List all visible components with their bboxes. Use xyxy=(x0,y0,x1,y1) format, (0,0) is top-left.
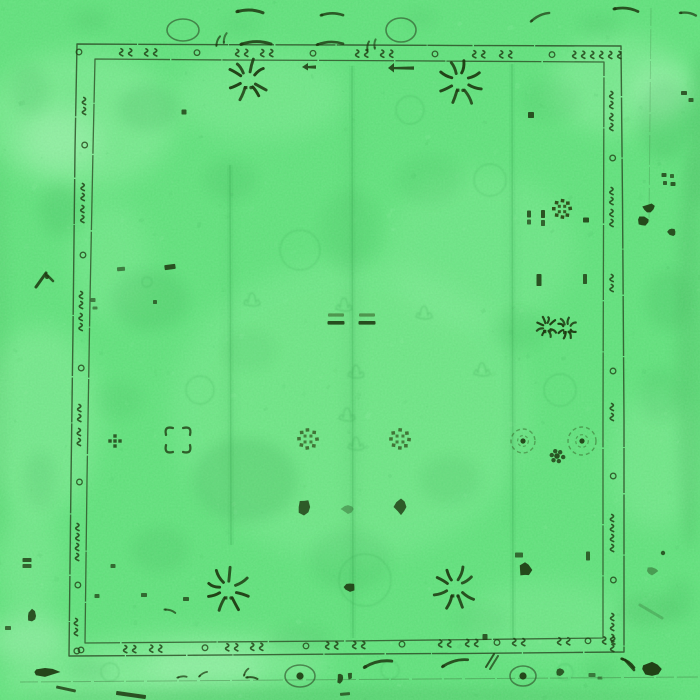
rosette-square xyxy=(309,435,312,438)
speckle xyxy=(231,617,233,619)
dark-mark xyxy=(483,634,488,640)
spray-center xyxy=(244,86,247,89)
spray-center xyxy=(563,331,566,334)
speckle xyxy=(641,598,648,602)
dark-mark xyxy=(93,307,98,310)
speckle xyxy=(615,410,617,413)
speckle xyxy=(494,648,497,652)
speckle xyxy=(109,22,112,26)
dark-mark xyxy=(527,220,531,225)
speckle xyxy=(114,658,117,662)
spray-center-dot xyxy=(249,86,252,89)
rosette-square xyxy=(401,440,404,443)
rosette-center-dot xyxy=(520,438,525,443)
cross-square xyxy=(113,434,116,437)
speckle xyxy=(274,243,278,247)
speckle xyxy=(357,506,362,511)
speckle xyxy=(48,319,51,322)
rosette-square xyxy=(391,431,395,435)
cross-square xyxy=(113,444,116,447)
speckle xyxy=(463,228,466,231)
dark-mark xyxy=(583,218,589,223)
speckle xyxy=(130,342,134,347)
rosette-square xyxy=(555,213,559,217)
ghost-motif xyxy=(580,15,620,35)
dark-mark xyxy=(153,300,157,304)
speckle xyxy=(282,384,287,389)
speckle xyxy=(79,152,82,156)
rosette-square xyxy=(309,440,312,443)
speckle xyxy=(347,441,349,442)
speckle xyxy=(538,640,542,644)
cluster-dot xyxy=(553,449,557,453)
dark-mark xyxy=(91,298,96,302)
speckle xyxy=(1,7,5,11)
ghost-motif xyxy=(666,580,694,620)
rosette-square xyxy=(398,446,402,450)
speckle xyxy=(517,221,520,224)
ghost-motif xyxy=(270,626,330,654)
speckle xyxy=(360,654,363,657)
speckle xyxy=(501,431,503,432)
speckle xyxy=(487,511,488,512)
spray-center xyxy=(456,89,459,92)
speckle xyxy=(636,524,638,526)
dark-mark xyxy=(589,673,596,677)
dark-mark xyxy=(681,91,687,95)
cross-square xyxy=(108,439,111,442)
dark-mark xyxy=(5,626,11,630)
rosette-square xyxy=(305,446,309,450)
rosette-square xyxy=(306,428,310,432)
rosette-square xyxy=(563,205,566,208)
speckle xyxy=(518,357,521,361)
spray-center-dot xyxy=(568,330,571,333)
cluster-dot xyxy=(557,459,561,463)
spray-center-dot xyxy=(461,89,464,92)
ghost-motif xyxy=(454,606,506,634)
speckle xyxy=(63,323,66,325)
dark-mark xyxy=(586,552,590,561)
rosette-square xyxy=(558,205,561,208)
cluster-dot xyxy=(561,455,565,459)
speckle xyxy=(194,461,196,463)
dark-mark xyxy=(117,267,125,272)
rosette-square xyxy=(401,435,404,438)
ghost-motif xyxy=(132,528,188,572)
speckle xyxy=(594,94,598,97)
dark-mark xyxy=(141,593,147,597)
rosette-square xyxy=(404,444,408,447)
speckle xyxy=(99,351,103,355)
rosette-square xyxy=(304,440,307,443)
dark-mark xyxy=(111,564,116,568)
ghost-motif xyxy=(193,438,297,522)
dark-mark xyxy=(671,182,676,186)
rug-photo xyxy=(0,0,700,700)
dark-mark xyxy=(23,558,32,562)
spray-center xyxy=(543,330,546,333)
crease-line xyxy=(230,165,231,545)
dark-mark xyxy=(663,181,667,185)
speckle xyxy=(391,228,396,232)
ghost-motif xyxy=(118,86,178,130)
rosette-center-dot xyxy=(579,438,584,443)
rosette-square xyxy=(396,440,399,443)
rosette-square xyxy=(300,431,304,435)
spray-center-dot xyxy=(548,329,551,332)
rosette-square xyxy=(396,435,399,438)
speckle xyxy=(220,312,222,315)
ghost-motif xyxy=(420,456,480,504)
ellipse-center-dot xyxy=(519,672,526,679)
rosette-square xyxy=(398,428,402,432)
rosette-square xyxy=(297,437,301,441)
speckle xyxy=(593,514,595,517)
cluster-dot xyxy=(551,458,555,462)
dark-dot xyxy=(661,551,665,555)
rosette-square xyxy=(566,201,570,205)
rosette-square xyxy=(312,444,316,448)
speckle xyxy=(123,89,126,92)
ghost-motif xyxy=(72,10,108,30)
speckle xyxy=(153,233,156,236)
ghost-motif xyxy=(98,382,142,418)
rosette-square xyxy=(389,437,393,440)
dash-upper xyxy=(328,313,344,316)
speckle xyxy=(433,81,436,84)
spray-leaf xyxy=(548,317,549,323)
speckle xyxy=(26,268,29,271)
dark-mark xyxy=(23,564,32,568)
speckle xyxy=(575,251,580,256)
rosette-square xyxy=(304,435,307,438)
rug-image-container: Top-down photograph of an emerald green … xyxy=(0,0,700,700)
ghost-motif xyxy=(646,270,690,330)
rosette-square xyxy=(563,210,566,213)
cross-square xyxy=(118,439,121,442)
crease-line xyxy=(512,64,513,640)
speckle xyxy=(679,204,683,208)
spray-center-dot xyxy=(229,596,232,599)
rosette-square xyxy=(315,437,319,441)
speckle xyxy=(584,117,587,121)
speckle xyxy=(118,242,119,243)
speckle xyxy=(683,242,686,246)
dark-mark xyxy=(537,274,542,286)
ghost-motif xyxy=(640,369,680,421)
dark-mark xyxy=(689,98,694,102)
speckle xyxy=(209,116,211,118)
dark-mark xyxy=(95,594,100,598)
speckle xyxy=(483,121,487,124)
speckle xyxy=(221,288,224,292)
speckle xyxy=(551,666,553,668)
speckle xyxy=(7,178,8,179)
speckle xyxy=(426,406,428,407)
rosette-square xyxy=(560,215,564,219)
ghost-motif xyxy=(70,660,110,680)
rosette-square xyxy=(565,213,569,217)
ellipse-center-dot xyxy=(296,672,303,679)
dark-mark xyxy=(527,211,531,218)
rosette-square xyxy=(392,443,396,447)
ghost-motif xyxy=(398,156,462,204)
speckle xyxy=(218,205,221,207)
dash-lower xyxy=(359,321,376,325)
rosette-square xyxy=(555,201,559,205)
rosette-square xyxy=(558,210,561,213)
speckle xyxy=(408,203,410,205)
rosette-square xyxy=(568,207,572,211)
rosette-square xyxy=(405,431,409,435)
spray-leaf xyxy=(229,567,230,581)
speckle xyxy=(594,595,596,596)
dark-mark xyxy=(670,174,674,178)
ghost-motif xyxy=(404,10,436,26)
dash-lower xyxy=(328,321,345,325)
dark-mark xyxy=(662,173,667,177)
spray-center xyxy=(451,594,454,597)
speckle xyxy=(692,163,694,165)
ghost-motif xyxy=(112,270,188,330)
rosette-square xyxy=(561,199,565,203)
speckle xyxy=(379,534,381,537)
dark-mark xyxy=(183,597,189,601)
rosette-square xyxy=(552,207,556,210)
rosette-square xyxy=(299,443,303,447)
cross-square xyxy=(113,439,116,442)
cluster-dot xyxy=(558,450,562,454)
dark-mark xyxy=(541,220,545,226)
ghost-motif xyxy=(222,17,258,33)
speckle xyxy=(179,13,180,14)
cluster-dot xyxy=(550,453,554,457)
speckle xyxy=(410,429,411,431)
dark-mark xyxy=(598,677,603,680)
dash-upper xyxy=(359,313,375,316)
spray-center xyxy=(224,596,227,599)
rosette-square xyxy=(312,430,316,434)
crease-line xyxy=(352,66,353,638)
spray-center-dot xyxy=(456,594,459,597)
speckle xyxy=(659,440,662,443)
dark-mark xyxy=(541,210,545,218)
speckle xyxy=(332,345,334,348)
dark-mark xyxy=(583,274,587,284)
speckle xyxy=(560,696,564,700)
ghost-motif xyxy=(12,66,48,114)
dark-mark xyxy=(182,110,187,115)
speckle xyxy=(652,542,654,544)
speckle xyxy=(523,185,524,187)
ghost-motif xyxy=(24,452,56,508)
dark-mark xyxy=(515,553,523,558)
rosette-square xyxy=(407,438,411,442)
dark-mark xyxy=(528,112,534,118)
